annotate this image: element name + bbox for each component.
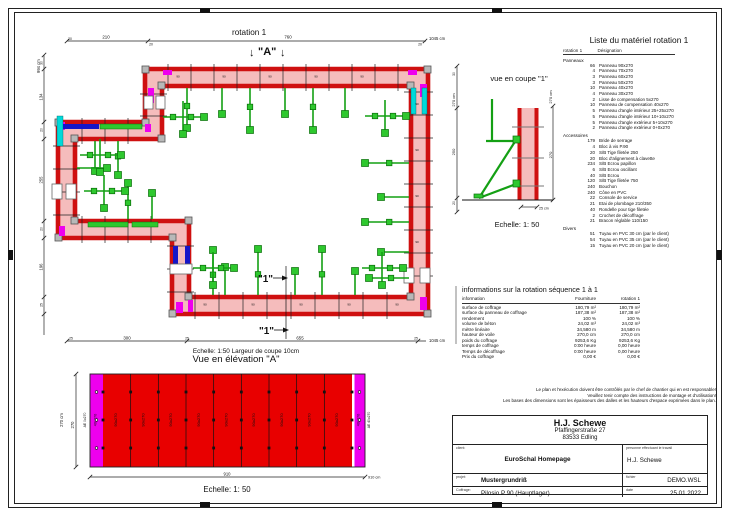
down-arrow-icon: ↓ bbox=[280, 47, 286, 59]
elevation-scale: Echelle: 1: 50 bbox=[203, 485, 251, 494]
svg-text:90: 90 bbox=[251, 303, 255, 307]
project-value: Mustergrundriß bbox=[481, 477, 527, 484]
date-label: date bbox=[626, 488, 633, 492]
svg-text:90x270: 90x270 bbox=[113, 413, 118, 427]
dim-label: 25 cm bbox=[539, 207, 549, 211]
dim-label: 134 bbox=[39, 93, 44, 101]
material-list: Liste du matériel rotation 1 rotation 1 … bbox=[563, 35, 715, 249]
worker-value: H.J. Schewe bbox=[623, 457, 699, 464]
dim-total: 1045 cm bbox=[429, 338, 446, 343]
dim-label: 20 bbox=[40, 227, 44, 231]
material-items: Panneaux66Panneau 90x2704Panneau 70x2703… bbox=[563, 58, 715, 249]
push-pull-props bbox=[77, 88, 410, 295]
info-table-row: Prix du coffrage0,00 €0,00 € bbox=[462, 354, 640, 360]
down-arrow-icon: ↓ bbox=[249, 47, 255, 59]
svg-text:90: 90 bbox=[415, 102, 419, 106]
coupe-title: vue en coupe "1" bbox=[490, 74, 548, 83]
dim-label: 30 bbox=[452, 72, 456, 76]
dim-label: 20 bbox=[418, 43, 422, 47]
dim-label: 20 bbox=[452, 201, 456, 205]
dim-label: 760 bbox=[284, 35, 292, 40]
drawing-sheet: rotation 1 9090909090909090909090909090 … bbox=[0, 0, 730, 515]
plan-title: rotation 1 bbox=[232, 28, 267, 37]
dim-label: 210 bbox=[102, 35, 110, 40]
dim-label: 20 bbox=[40, 128, 44, 132]
svg-text:AE 40x270: AE 40x270 bbox=[367, 412, 371, 429]
dim-total: 270 cm bbox=[59, 413, 64, 427]
worker-cell: personne effectuant le travail H.J. Sche… bbox=[623, 445, 707, 473]
dim-label: 20 bbox=[68, 37, 72, 41]
svg-text:90x270: 90x270 bbox=[196, 413, 201, 427]
svg-text:90x270: 90x270 bbox=[251, 413, 256, 427]
coupe-scale: Echelle: 1: 50 bbox=[495, 220, 540, 229]
worker-label: personne effectuant le travail bbox=[626, 446, 672, 450]
brace-foot bbox=[474, 194, 483, 198]
client-cell: client: EuroSchal Homepage bbox=[453, 445, 623, 473]
section-a-label: "A" bbox=[258, 46, 276, 58]
dim-label: 196 bbox=[39, 263, 44, 271]
dim-label: 655 bbox=[296, 336, 304, 341]
svg-text:90: 90 bbox=[203, 303, 207, 307]
column-qty: rotation 1 bbox=[563, 48, 582, 53]
dim-label: 255 bbox=[39, 176, 44, 184]
svg-text:90: 90 bbox=[415, 240, 419, 244]
date-value: 25.01.2022 bbox=[670, 490, 701, 497]
dim-total: 270 cm bbox=[548, 90, 553, 104]
dim-label: 25 bbox=[185, 337, 189, 341]
svg-text:90: 90 bbox=[176, 75, 180, 79]
formwork-label: Coffrage: bbox=[456, 488, 471, 492]
rotation-info-table: informations sur la rotation séquence 1 … bbox=[462, 285, 640, 360]
company-name: H.J. Schewe bbox=[453, 416, 707, 428]
svg-text:90: 90 bbox=[415, 148, 419, 152]
info-table-rows: surface de coffrage180,79 m²180,79 m²sur… bbox=[462, 305, 640, 360]
info-table-title: informations sur la rotation séquence 1 … bbox=[462, 285, 640, 294]
plan-view: rotation 1 9090909090909090909090909090 … bbox=[52, 28, 433, 339]
svg-text:90: 90 bbox=[268, 75, 272, 79]
brace-mount bbox=[513, 136, 520, 143]
right-arrow-icon bbox=[282, 276, 288, 281]
dim-label: 270 bbox=[70, 421, 75, 429]
svg-text:90: 90 bbox=[415, 194, 419, 198]
svg-text:90x270: 90x270 bbox=[334, 413, 339, 427]
material-list-title: Liste du matériel rotation 1 bbox=[563, 35, 715, 45]
svg-text:90x270: 90x270 bbox=[279, 413, 284, 427]
file-label: fichier bbox=[626, 475, 636, 479]
file-cell: fichier DEMO.WSL bbox=[623, 474, 707, 486]
client-label: client: bbox=[456, 446, 465, 450]
svg-text:90x270: 90x270 bbox=[168, 413, 173, 427]
svg-text:90x270: 90x270 bbox=[307, 413, 312, 427]
column-name: Désignation bbox=[597, 48, 621, 53]
dim-label: 300 bbox=[123, 336, 131, 341]
svg-text:AE 0x270: AE 0x270 bbox=[83, 413, 87, 428]
svg-text:90: 90 bbox=[299, 303, 303, 307]
dim-total: 910 cm bbox=[368, 476, 380, 480]
formwork-value: Pilosio P 90 (Hauptlager) bbox=[481, 490, 550, 497]
client-value: EuroSchal Homepage bbox=[453, 456, 622, 463]
title-block-company: H.J. Schewe Pfaffingerstraße 27 83533 Ed… bbox=[453, 416, 707, 445]
material-item: 21Bracon réglable 110/150 bbox=[563, 218, 715, 224]
material-item: 15Tuyau en PVC 20 cm (par le client) bbox=[563, 243, 715, 249]
material-list-header: rotation 1 Désignation bbox=[563, 48, 675, 55]
svg-text:90: 90 bbox=[395, 303, 399, 307]
formwork-cell: Coffrage: Pilosio P 90 (Hauptlager) bbox=[453, 487, 623, 497]
svg-text:90: 90 bbox=[347, 303, 351, 307]
stabilizer-brace bbox=[479, 99, 517, 198]
svg-text:90: 90 bbox=[314, 75, 318, 79]
svg-text:90: 90 bbox=[360, 75, 364, 79]
section-1-label: "1" bbox=[259, 326, 274, 337]
dim-label: 250 bbox=[451, 148, 456, 155]
dim-label: 270 bbox=[548, 151, 553, 158]
title-block: H.J. Schewe Pfaffingerstraße 27 83533 Ed… bbox=[452, 415, 708, 495]
dim-label: 25 bbox=[40, 303, 44, 307]
date-cell: date 25.01.2022 bbox=[623, 487, 707, 497]
material-item: 2Panneau d'angle extérieur 0+0x270 bbox=[563, 125, 715, 131]
dim-label: 25 bbox=[414, 337, 418, 341]
elevation-title: Vue en élévation "A" bbox=[193, 354, 280, 365]
dim-label: 30 bbox=[40, 61, 44, 65]
dim-label: 25 bbox=[69, 337, 73, 341]
dim-total: 270 cm bbox=[451, 93, 456, 107]
info-table-header: information Fourniture rotation 1 bbox=[462, 296, 640, 304]
svg-text:90x270: 90x270 bbox=[141, 413, 146, 427]
project-label: projet: bbox=[456, 475, 466, 479]
dim-total: 1045 cm bbox=[429, 36, 446, 41]
brace-mount bbox=[513, 180, 520, 187]
company-address1: Pfaffingerstraße 27 bbox=[453, 428, 707, 435]
elevation-view: 90x27090x27090x27090x27090x27090x27090x2… bbox=[59, 374, 380, 494]
file-value: DEMO.WSL bbox=[667, 477, 701, 484]
footnote-line: Les bases des dimensions sont les épaiss… bbox=[396, 398, 716, 404]
dim-total: 994 cm bbox=[36, 59, 41, 73]
project-cell: projet: Mustergrundriß bbox=[453, 474, 623, 486]
svg-text:90x270: 90x270 bbox=[224, 413, 229, 427]
dim-label: 910 bbox=[224, 472, 232, 477]
section-1-label: "1" bbox=[258, 274, 273, 285]
footnote: Le plan et l'exécution doivent être cont… bbox=[396, 387, 716, 404]
company-address2: 83533 Edling bbox=[453, 435, 707, 442]
dim-label: 20 bbox=[149, 43, 153, 47]
svg-text:90: 90 bbox=[222, 75, 226, 79]
